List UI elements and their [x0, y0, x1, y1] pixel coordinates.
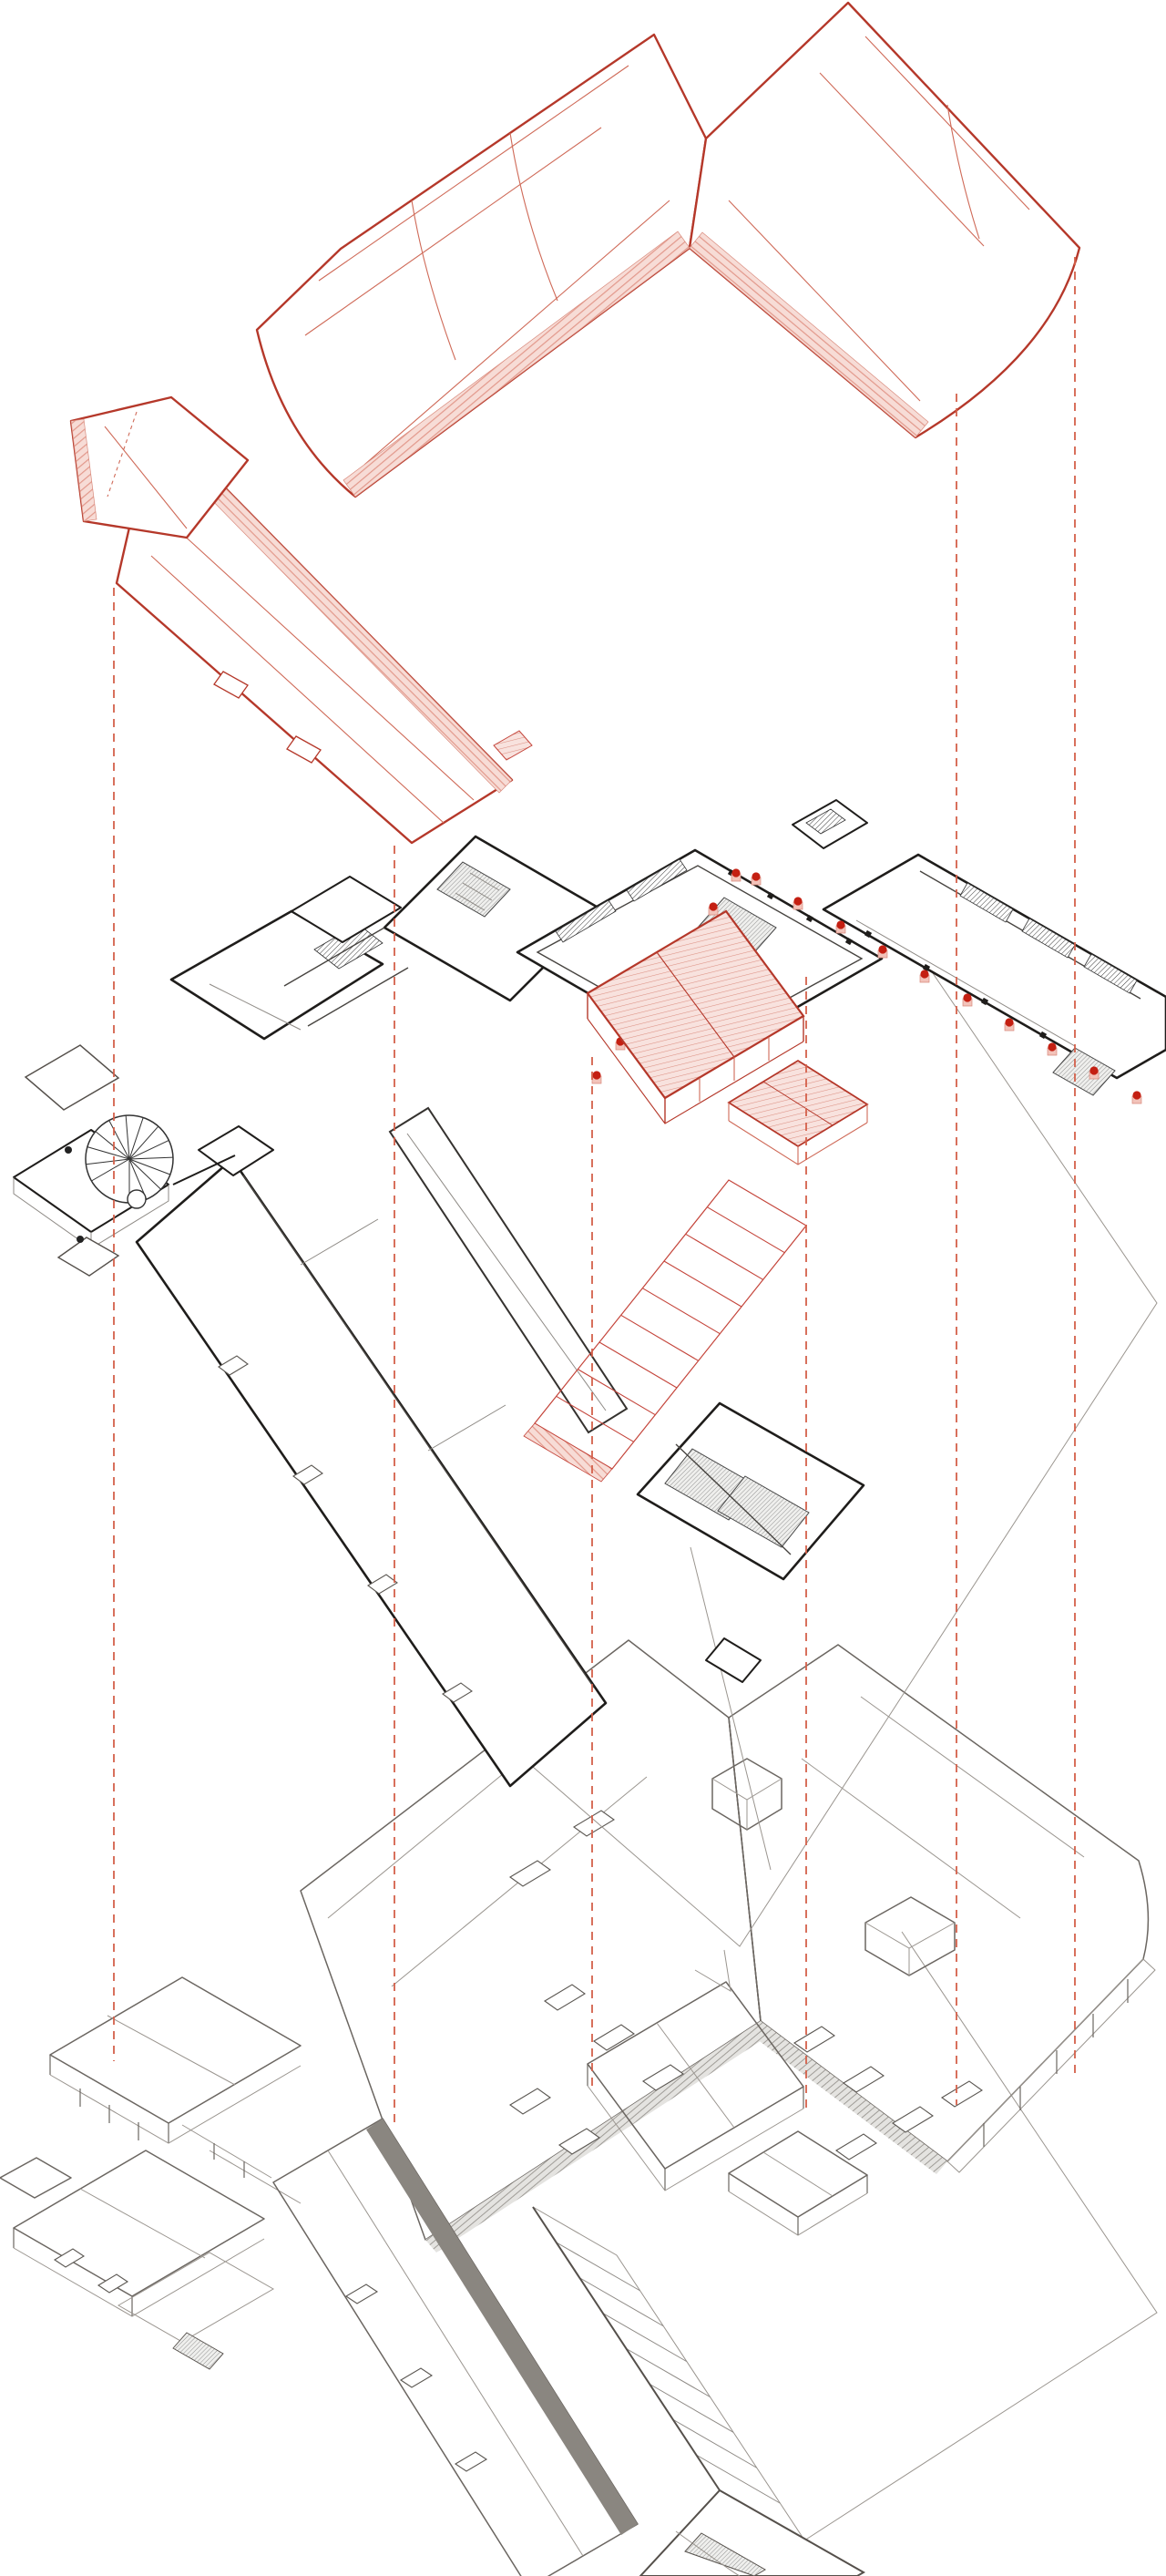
column-marker: [1048, 1042, 1056, 1051]
column-marker: [793, 897, 802, 905]
roof-opening: [545, 1985, 585, 2010]
column-marker: [752, 872, 760, 880]
model-left-wing-roof: [273, 2119, 638, 2576]
plan-entry-stair: [638, 1403, 864, 1682]
column-marker: [836, 920, 844, 929]
roof-opening: [794, 2027, 834, 2052]
plan-north-annex: [793, 800, 867, 848]
model-roof-openings: [510, 1811, 982, 2160]
column-marker: [709, 902, 717, 910]
plan-red-wall-fragment: [494, 731, 532, 760]
model-left-wing-fascia: [366, 2119, 638, 2535]
plan-courtyard-slot: [390, 1108, 627, 1432]
model-roof-right-wing: [729, 1645, 1148, 2161]
exploded-axonometric-diagram: [0, 0, 1166, 2576]
roof-opening: [510, 2089, 550, 2114]
column-marker: [592, 1071, 600, 1079]
model-right-colonnade: [947, 1959, 1155, 2172]
plan-upper-left-block: [171, 877, 401, 1039]
column-marker: [731, 868, 740, 877]
model-left-houses: [0, 1977, 301, 2369]
roof-opening: [510, 1861, 550, 1886]
roof-plan-layer: [71, 3, 1079, 843]
roof-opening: [836, 2134, 876, 2160]
column-marker: [920, 970, 928, 978]
column-marker: [1132, 1091, 1140, 1099]
floor-plan-layer: [14, 731, 1166, 1991]
column-marker: [1089, 1066, 1098, 1074]
column-marker: [963, 993, 971, 1001]
plan-ground-slab: [527, 928, 1157, 1946]
column-marker: [1005, 1018, 1013, 1026]
column-marker: [878, 945, 886, 953]
plan-left-wing: [137, 1126, 606, 1786]
massing-model-layer: [0, 1640, 1157, 2576]
model-north-annex: [865, 1897, 955, 1976]
roof-opening: [942, 2081, 982, 2107]
plan-right-wing: [823, 855, 1166, 1095]
roof-opening: [594, 2025, 634, 2050]
diagram-canvas: [0, 0, 1166, 2576]
